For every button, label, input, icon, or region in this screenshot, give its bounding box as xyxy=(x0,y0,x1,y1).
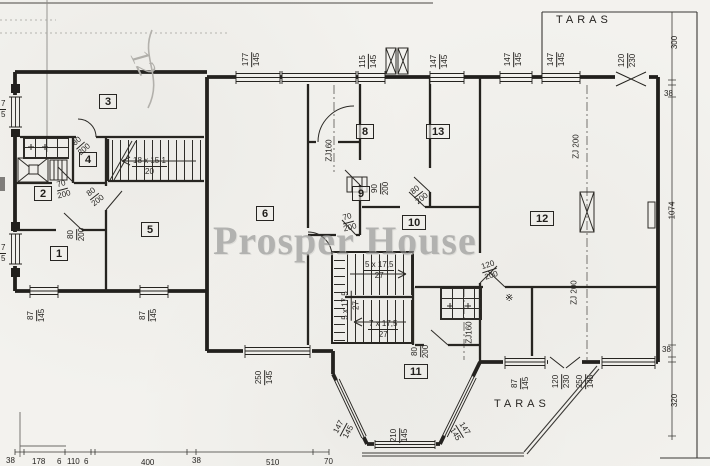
door-dim-90x200: 90200 xyxy=(374,173,387,198)
room-number-6: 6 xyxy=(256,206,274,221)
room-number-11: 11 xyxy=(404,364,428,379)
room-number-3: 3 xyxy=(99,94,117,109)
door-dim-70x200: 70200 xyxy=(56,174,69,199)
window-dim-87x145: 87145 xyxy=(30,300,43,325)
bottom-dim-6: 6 xyxy=(84,457,88,466)
room-number-9: 9 xyxy=(352,186,370,201)
bottom-dim-510: 510 xyxy=(266,458,279,466)
door-dim-120x230: 120230 xyxy=(620,45,635,70)
dim-terrace-depth-320: 320 xyxy=(670,394,679,407)
door-dim-80x200: 80200 xyxy=(74,130,87,155)
room-number-10: 10 xyxy=(402,215,426,230)
lintel-label-zj160: ZJ160 xyxy=(465,321,474,343)
room-number-13: 13 xyxy=(426,124,450,139)
stair-dim-main: 18 x 15,120 xyxy=(132,151,167,176)
door-dim-80x200: 80200 xyxy=(70,219,83,244)
room-number-5: 5 xyxy=(141,222,159,237)
bottom-dim-178: 178 xyxy=(32,457,45,466)
window-dim-177x145: 177145 xyxy=(244,44,259,69)
window-dim-250x145: 250145 xyxy=(257,362,272,387)
door-dim-70x200: 70200 xyxy=(342,207,355,232)
bottom-dim-400: 400 xyxy=(141,458,154,466)
window-dim-147x145: 147145 xyxy=(336,414,351,439)
stair-dim-lower-flight: 7 x 17,527 xyxy=(368,314,398,339)
window-dim-147x145: 147145 xyxy=(549,44,564,69)
door-dim-120x200: 120200 xyxy=(482,255,497,280)
lintel-label-zj200: ZJ 200 xyxy=(572,134,581,158)
door-dim-80x200: 80200 xyxy=(414,336,427,361)
window-dim-147x145: 147145 xyxy=(432,46,447,71)
kitchenette-counter xyxy=(440,288,482,320)
window-dim-147x145: 147145 xyxy=(506,44,521,69)
bottom-dim-6: 6 xyxy=(57,457,61,466)
door-dim-80x200: 80200 xyxy=(412,179,425,204)
room-number-8: 8 xyxy=(356,124,374,139)
room-number-12: 12 xyxy=(530,211,554,226)
bottom-dim-70: 70 xyxy=(324,457,333,466)
dim-depth-1074: 1074 xyxy=(667,202,676,220)
window-dim-210x145: 210145 xyxy=(392,420,407,445)
left-edge-dim: 75 xyxy=(0,94,6,119)
window-dim-147x145: 147145 xyxy=(452,416,467,441)
window-dim-250x145: 250145 xyxy=(578,366,593,391)
dim-wall-38: 38 xyxy=(664,89,673,98)
floor-plan-scan: Prosper House 12 TARAS TARAS ※ 1 2 3 4 5… xyxy=(0,0,710,466)
kitchen-cabinets-topleft xyxy=(23,138,69,159)
room-number-1: 1 xyxy=(50,246,68,261)
terrace-bottom-label: TARAS xyxy=(494,398,550,410)
window-dim-87x145: 87145 xyxy=(142,300,155,325)
bottom-dim-38: 38 xyxy=(192,456,201,465)
pantry-symbol: ※ xyxy=(505,293,513,304)
dim-wall-38: 38 xyxy=(662,345,671,354)
door-dim-80x200: 80200 xyxy=(88,181,101,206)
door-dim-120x230: 120230 xyxy=(554,366,569,391)
stair-dim-winder-flight: 5 x 17,527 xyxy=(336,290,366,315)
bottom-dim-110: 110 xyxy=(67,457,80,466)
window-dim-115x145: 115145 xyxy=(361,46,376,71)
terrace-top-label: TARAS xyxy=(556,14,612,26)
lintel-label-zj160: ZJ160 xyxy=(325,139,334,161)
dim-terrace-depth-300: 300 xyxy=(670,36,679,49)
bottom-dim-38: 38 xyxy=(6,456,15,465)
window-dim-87x145: 87145 xyxy=(514,368,527,393)
lintel-label-zj200: ZJ 200 xyxy=(570,280,579,304)
stair-dim-upper-flight: 5 x 17,527 xyxy=(364,255,394,280)
room-number-2: 2 xyxy=(34,186,52,201)
left-edge-dim: 75 xyxy=(0,238,6,263)
